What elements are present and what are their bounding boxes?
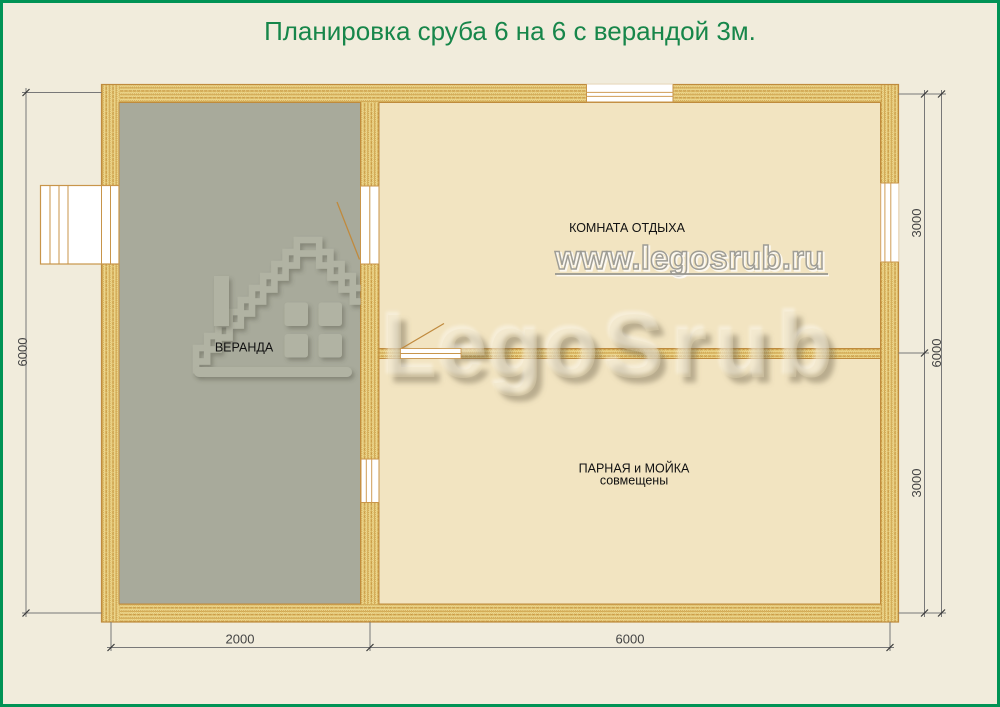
svg-text:3000: 3000 bbox=[909, 209, 924, 238]
svg-text:6000: 6000 bbox=[15, 338, 30, 367]
svg-text:6000: 6000 bbox=[616, 632, 645, 647]
svg-text:LegoSrub: LegoSrub bbox=[382, 297, 841, 397]
svg-text:ВЕРАНДА: ВЕРАНДА bbox=[215, 341, 274, 355]
svg-text:Планировка сруба 6 на 6 с вера: Планировка сруба 6 на 6 с верандой 3м. bbox=[264, 16, 756, 46]
svg-text:2000: 2000 bbox=[226, 632, 255, 647]
svg-text:6000: 6000 bbox=[929, 339, 944, 368]
svg-text:совмещены: совмещены bbox=[600, 474, 668, 488]
svg-text:www.legosrub.ru: www.legosrub.ru bbox=[554, 239, 824, 276]
svg-text:КОМНАТА ОТДЫХА: КОМНАТА ОТДЫХА bbox=[569, 221, 686, 235]
svg-text:3000: 3000 bbox=[909, 469, 924, 498]
